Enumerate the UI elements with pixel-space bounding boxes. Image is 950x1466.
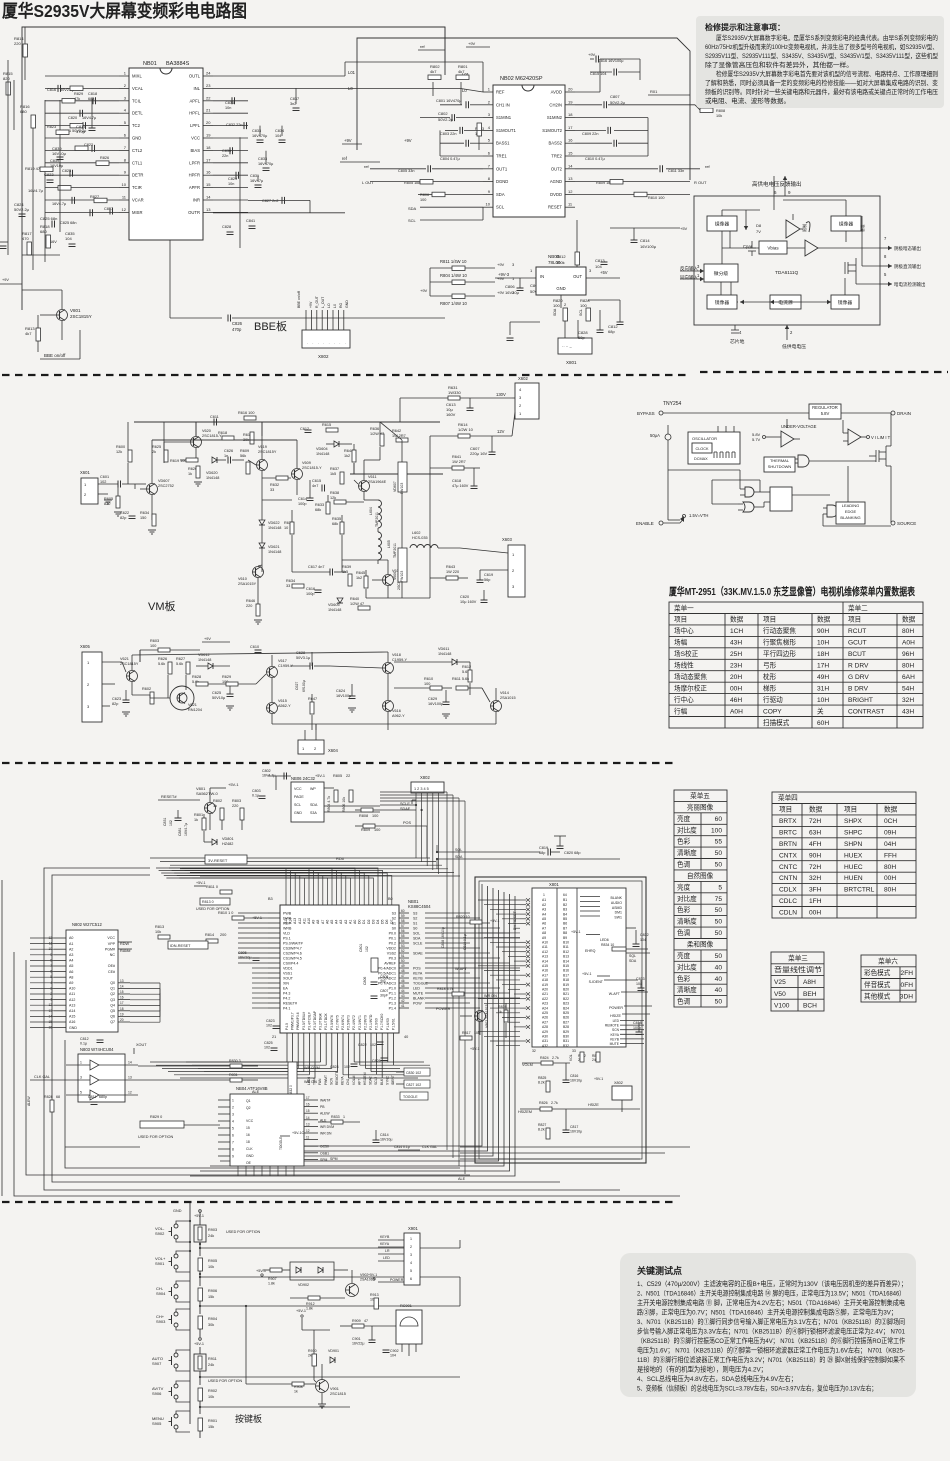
svg-text:A25: A25 [542, 1011, 548, 1015]
svg-text:72H: 72H [809, 864, 821, 871]
svg-text:1k: 1k [294, 1390, 298, 1394]
svg-text:R820 10: R820 10 [456, 915, 470, 919]
svg-text:R906: R906 [208, 1289, 217, 1293]
svg-text:P3.1/TDCK: P3.1/TDCK [324, 1013, 328, 1030]
svg-text:SQL: SQL [629, 954, 636, 958]
svg-text:1 2 3 4 5: 1 2 3 4 5 [414, 787, 429, 791]
svg-text:Q5: Q5 [110, 1009, 115, 1013]
svg-text:4: 4 [232, 1120, 234, 1124]
svg-text:5.8V: 5.8V [821, 411, 830, 416]
svg-text:了解和熟悉，同时必须具备一定的变频彩电的检修技能——如对大屏: 了解和熟悉，同时必须具备一定的变频彩电的检修技能——如对大屏幕集成电路的识别、变 [705, 78, 939, 87]
svg-text:P1.5/S1: P1.5/S1 [391, 1018, 395, 1030]
svg-text:DWB: DWB [283, 916, 292, 920]
svg-text:C809 22n: C809 22n [582, 132, 598, 136]
svg-text:R801: R801 [194, 813, 203, 817]
svg-text:C823: C823 [44, 172, 54, 177]
svg-text:1N4148: 1N4148 [206, 476, 219, 480]
svg-text:R811 1/4W 10: R811 1/4W 10 [440, 259, 467, 264]
svg-text:R813 0: R813 0 [202, 900, 214, 904]
svg-text:SQL: SQL [455, 848, 462, 852]
svg-text:A10: A10 [69, 987, 75, 991]
svg-text:B32: B32 [563, 1044, 569, 1048]
svg-text:96H: 96H [902, 651, 914, 658]
svg-text:NB04 ATF16V8B: NB04 ATF16V8B [236, 1086, 268, 1091]
svg-text:项目: 项目 [779, 806, 792, 814]
svg-text:CH1 IN: CH1 IN [496, 102, 510, 107]
svg-text:58: 58 [401, 919, 405, 923]
svg-text:46: 46 [401, 979, 405, 983]
svg-text:A14: A14 [69, 1009, 75, 1013]
svg-text:菜单五: 菜单五 [690, 791, 710, 800]
svg-text:阴极直流输出: 阴极直流输出 [894, 263, 921, 270]
svg-text:V615: V615 [278, 699, 287, 703]
svg-text:REMOTE: REMOTE [605, 1024, 620, 1028]
svg-text:BA3884S: BA3884S [166, 61, 190, 67]
svg-text:12k: 12k [116, 450, 122, 454]
svg-text:10n: 10n [228, 182, 234, 186]
svg-text:OUT: OUT [573, 274, 582, 279]
svg-text:16V100μ: 16V100μ [640, 244, 657, 249]
svg-text:R626: R626 [158, 657, 167, 661]
svg-text:BRTX: BRTX [779, 818, 797, 825]
svg-text:VD620: VD620 [206, 471, 218, 475]
svg-text:菜单六: 菜单六 [878, 956, 898, 965]
svg-text:APFL: APFL [190, 98, 201, 103]
svg-text:470p: 470p [232, 327, 242, 332]
svg-text:17: 17 [120, 1001, 124, 1005]
svg-text:行驱动: 行驱动 [763, 695, 783, 704]
svg-text:Q3: Q3 [110, 998, 115, 1002]
svg-text:S3: S3 [413, 911, 417, 915]
svg-text:Q0: Q0 [110, 981, 115, 985]
svg-text:C812: C812 [80, 1037, 89, 1041]
svg-text:0.1μ: 0.1μ [252, 794, 259, 798]
svg-text:GND: GND [345, 300, 349, 308]
svg-text:8.2k: 8.2k [538, 1081, 545, 1085]
svg-text:2k: 2k [308, 1354, 312, 1358]
svg-text:150: 150 [140, 516, 146, 520]
svg-text:V801: V801 [70, 308, 81, 313]
svg-text:C807: C807 [380, 989, 388, 993]
svg-text:A3: A3 [542, 908, 546, 912]
svg-text:BRTCTRL: BRTCTRL [844, 887, 875, 894]
svg-text:SCLE: SCLE [413, 941, 423, 945]
svg-text:W-AFT: W-AFT [455, 967, 468, 971]
svg-text:21: 21 [272, 1035, 276, 1039]
svg-text:R807 1/4W 10: R807 1/4W 10 [440, 301, 467, 306]
svg-text:R831: R831 [229, 1073, 238, 1077]
svg-text:L_OUT: L_OUT [321, 296, 325, 308]
svg-text:P0.4/ADC0: P0.4/ADC0 [378, 966, 396, 970]
svg-text:AFT: AFT [357, 1079, 361, 1085]
svg-text:厦华S2935V大屏幕变频彩电电路图: 厦华S2935V大屏幕变频彩电电路图 [2, 1, 247, 21]
svg-text:09H: 09H [884, 829, 896, 836]
svg-text:45: 45 [401, 984, 405, 988]
svg-text:P3.4/TC0L#: P3.4/TC0L# [307, 1012, 311, 1030]
svg-text:HUEN: HUEN [844, 875, 863, 882]
svg-text:BBE on/off: BBE on/off [44, 353, 66, 358]
svg-text:检修厦华S2935V大屏幕数字彩电首先要对该机型的信号流程、: 检修厦华S2935V大屏幕数字彩电首先要对该机型的信号流程、电路特点、工作原理细… [716, 69, 938, 78]
svg-text:CLK GAL: CLK GAL [34, 1075, 50, 1079]
svg-text:A15: A15 [69, 1015, 75, 1019]
svg-text:A22: A22 [542, 997, 548, 1001]
svg-text:1N4148: 1N4148 [316, 452, 329, 456]
svg-text:D4: D4 [376, 919, 380, 924]
svg-text:A3: A3 [339, 920, 343, 924]
svg-text:C837: C837 [290, 97, 299, 101]
svg-text:C836: C836 [225, 101, 234, 105]
svg-text:SDA: SDA [413, 936, 421, 940]
svg-text:1N4148: 1N4148 [198, 658, 211, 662]
svg-text:B30: B30 [563, 1035, 569, 1039]
svg-text:16V4.7μ: 16V4.7μ [82, 116, 96, 120]
svg-text:R639: R639 [342, 565, 351, 569]
svg-text:SCN: SCN [329, 1077, 333, 1085]
svg-text:INL: INL [193, 86, 200, 91]
svg-text:HUEC: HUEC [844, 864, 863, 871]
svg-text:S1: S1 [413, 921, 417, 925]
svg-text:DGND: DGND [496, 179, 508, 184]
svg-text:C826: C826 [372, 1059, 381, 1063]
svg-text:限制: 限制 [801, 224, 807, 232]
svg-text:X802: X802 [318, 354, 329, 359]
svg-text:A16: A16 [69, 1020, 75, 1024]
svg-text:SHPN: SHPN [844, 841, 863, 848]
svg-text:14: 14 [568, 163, 573, 168]
svg-text:基准: 基准 [860, 224, 865, 232]
svg-text:15k: 15k [208, 1425, 214, 1429]
svg-text:14: 14 [120, 984, 124, 988]
svg-text:10: 10 [486, 202, 491, 207]
svg-text:是接地的（有的机型为接地），则电压为4.2V；: 是接地的（有的机型为接地），则电压为4.2V； [637, 1365, 767, 1374]
svg-text:R645: R645 [356, 571, 365, 575]
svg-text:A6: A6 [325, 920, 329, 924]
svg-text:13: 13 [568, 176, 573, 181]
svg-text:19: 19 [120, 1012, 124, 1016]
svg-text:+5V-1: +5V-1 [228, 782, 239, 787]
svg-text:D6: D6 [385, 919, 389, 924]
svg-text:RESET#: RESET# [283, 1001, 297, 1005]
svg-text:PAGE: PAGE [294, 795, 304, 799]
svg-text:56p: 56p [484, 578, 490, 582]
svg-text:CNTC: CNTC [779, 864, 798, 871]
svg-text:CE#: CE# [108, 970, 115, 974]
svg-text:+9V: +9V [497, 262, 505, 267]
svg-text:P1.6/S0: P1.6/S0 [386, 1018, 390, 1030]
svg-text:RDW: RDW [120, 942, 129, 946]
svg-text:Q2: Q2 [110, 992, 115, 996]
svg-text:+5V: +5V [680, 226, 688, 231]
svg-text:HSIZEM: HSIZEM [363, 1072, 367, 1085]
svg-text:A4: A4 [542, 912, 546, 916]
svg-text:BBE on/off: BBE on/off [297, 291, 301, 308]
svg-text:TCIR: TCIR [132, 185, 142, 190]
svg-text:TRE1: TRE1 [496, 154, 507, 159]
svg-text:UNDER-VOLTAGE: UNDER-VOLTAGE [781, 424, 817, 429]
svg-text:R632: R632 [270, 483, 279, 487]
svg-text:B3: B3 [563, 908, 567, 912]
svg-text:X802: X802 [420, 775, 430, 780]
svg-text:A1: A1 [69, 942, 73, 946]
svg-text:S3: S3 [392, 911, 396, 915]
svg-text:B24: B24 [563, 1006, 569, 1010]
svg-text:SCL: SCL [579, 309, 583, 316]
svg-text:R811 0: R811 0 [206, 885, 218, 889]
svg-text:R611 5.6k: R611 5.6k [452, 677, 469, 681]
svg-text:72H: 72H [809, 818, 821, 825]
svg-text:+5V-1: +5V-1 [571, 930, 581, 934]
svg-text:亮丽图像: 亮丽图像 [687, 802, 714, 811]
svg-text:11B）的⑧脚行相位滤波器正常工作电压为3.2V；N701（: 11B）的⑧脚行相位滤波器正常工作电压为3.2V；N701（KB2511B）的 … [637, 1355, 905, 1364]
svg-text:SOURCE: SOURCE [897, 521, 916, 526]
svg-text:470: 470 [22, 236, 29, 241]
svg-text:TDA6111Q: TDA6111Q [775, 270, 799, 276]
svg-text:C620: C620 [460, 595, 469, 599]
svg-text:C802: C802 [262, 769, 271, 773]
svg-text:2FH: 2FH [901, 970, 914, 977]
svg-text:A10: A10 [307, 918, 311, 924]
svg-text:A18: A18 [542, 978, 548, 982]
svg-text:R_OUT: R_OUT [315, 295, 319, 308]
svg-text:BASS2: BASS2 [548, 141, 562, 146]
svg-text:2、N501（TDA16846）主开关电源控制集成电路 ⑭: 2、N501（TDA16846）主开关电源控制集成电路 ⑭ 脚的电压，正常电压为… [637, 1289, 905, 1298]
svg-text:+5V-1: +5V-1 [594, 1077, 603, 1081]
svg-text:C610: C610 [250, 645, 259, 649]
svg-text:50: 50 [715, 862, 723, 869]
svg-text:HUEX: HUEX [844, 852, 863, 859]
svg-text:ALEW: ALEW [27, 1096, 31, 1106]
svg-text:C616: C616 [306, 587, 315, 591]
svg-text:1.8k: 1.8k [306, 1307, 313, 1311]
svg-text:3: 3 [410, 1253, 412, 1257]
svg-text:A7: A7 [321, 920, 325, 924]
svg-text:TC2: TC2 [132, 123, 141, 128]
svg-text:CTL1: CTL1 [132, 160, 143, 165]
svg-text:00H: 00H [730, 685, 742, 692]
svg-text:NB01: NB01 [143, 61, 157, 67]
svg-text:A19: A19 [542, 983, 548, 987]
svg-text:C825 68n: C825 68n [60, 221, 76, 225]
svg-text:X801: X801 [566, 360, 577, 365]
svg-text:弓形: 弓形 [763, 662, 777, 670]
svg-text:PB: PB [320, 1105, 325, 1109]
svg-text:BLK: BLK [380, 1078, 384, 1085]
svg-text:A2: A2 [344, 920, 348, 924]
svg-text:A6: A6 [69, 970, 73, 974]
svg-text:低供电电压: 低供电电压 [782, 343, 806, 350]
svg-text:R629: R629 [222, 675, 231, 679]
svg-text:A20: A20 [542, 988, 548, 992]
svg-text:场S校正: 场S校正 [674, 649, 699, 658]
svg-text:2SC1815-Y: 2SC1815-Y [302, 466, 322, 470]
svg-text:220: 220 [232, 804, 238, 808]
svg-text:2.7k: 2.7k [551, 1101, 558, 1105]
svg-text:彩色模式: 彩色模式 [864, 968, 891, 977]
svg-text:102: 102 [266, 1024, 272, 1028]
svg-text:TOGGLE: TOGGLE [403, 1095, 418, 1099]
svg-text:P0.1: P0.1 [389, 936, 396, 940]
svg-text:L OUT: L OUT [362, 180, 374, 185]
svg-text:7: 7 [232, 1141, 234, 1145]
svg-text:厦华S2935V大屏幕数字彩电，是厦华S系列变频彩电的经典代: 厦华S2935V大屏幕数字彩电，是厦华S系列变频彩电的经典代表。由早S系列变频彩… [716, 33, 938, 42]
svg-text:BEH: BEH [803, 991, 817, 998]
svg-text:R829: R829 [74, 92, 83, 96]
svg-text:SDA2: SDA2 [369, 1076, 373, 1085]
svg-text:R618: R618 [218, 431, 227, 435]
svg-text:13: 13 [206, 207, 211, 212]
svg-text:C816: C816 [47, 88, 56, 92]
svg-text:CNTN: CNTN [779, 875, 798, 882]
svg-text:102: 102 [100, 480, 106, 484]
svg-text:7V: 7V [756, 229, 761, 234]
svg-text:SCL: SCL [408, 218, 417, 223]
svg-text:104: 104 [275, 134, 281, 138]
svg-text:L01: L01 [348, 70, 356, 75]
svg-text:自然图像: 自然图像 [687, 871, 714, 880]
svg-text:APFR: APFR [189, 185, 200, 190]
svg-text:80H: 80H [884, 864, 896, 871]
svg-text:A13: A13 [542, 955, 548, 959]
svg-text:55: 55 [715, 839, 723, 846]
svg-text:P3.3/TDGAP: P3.3/TDGAP [313, 1010, 317, 1030]
svg-text:R903: R903 [208, 1228, 217, 1232]
svg-text:BBE板: BBE板 [254, 319, 287, 333]
svg-text:VD612: VD612 [198, 653, 210, 657]
svg-text:2SA1015Y: 2SA1015Y [238, 582, 257, 586]
svg-text:R628: R628 [192, 675, 201, 679]
svg-text:16: 16 [120, 996, 124, 1000]
svg-text:+5V-1: +5V-1 [196, 881, 206, 885]
svg-text:2: 2 [410, 1245, 412, 1249]
svg-text:1: 1 [80, 1061, 82, 1065]
svg-text:清晰度: 清晰度 [677, 848, 697, 857]
svg-text:VM板: VM板 [148, 599, 176, 613]
svg-text:C818: C818 [88, 92, 97, 96]
svg-text:KEYA: KEYA [341, 1076, 345, 1085]
svg-text:4k7: 4k7 [430, 69, 437, 74]
svg-text:数据: 数据 [884, 805, 898, 814]
svg-text:B1: B1 [563, 898, 567, 902]
svg-text:CTL2: CTL2 [132, 148, 143, 153]
svg-text:Q7: Q7 [110, 1020, 115, 1024]
svg-text:V620: V620 [202, 429, 211, 433]
svg-text:POWER: POWER [609, 1006, 623, 1010]
svg-text:A8: A8 [69, 975, 73, 979]
svg-text:160V: 160V [446, 412, 456, 417]
svg-text:C831: C831 [163, 818, 167, 826]
svg-text:220μ 16V: 220μ 16V [470, 451, 488, 456]
svg-text:枕形: 枕形 [763, 672, 777, 681]
svg-text:BLANK: BLANK [611, 896, 623, 900]
svg-text:对比度: 对比度 [677, 962, 697, 971]
svg-text:DRAIN: DRAIN [897, 411, 911, 416]
svg-text:菜单一: 菜单一 [674, 603, 694, 612]
svg-text:A8: A8 [542, 931, 546, 935]
svg-text:B DRV: B DRV [848, 685, 869, 692]
svg-text:+9V: +9V [309, 301, 313, 308]
svg-text:高供电电压反馈输出: 高供电电压反馈输出 [752, 180, 802, 188]
svg-text:21: 21 [206, 108, 211, 113]
svg-text:OUT1: OUT1 [496, 166, 508, 171]
svg-text:4FH: 4FH [809, 841, 822, 848]
svg-text:5、变频板（信频板）的总线电压为SCL=3.78V左右，SD: 5、变频板（信频板）的总线电压为SCL=3.78V左右，SDA=3.97V左右，… [637, 1384, 877, 1393]
svg-text:电流源: 电流源 [778, 299, 793, 306]
svg-text:扫描模式: 扫描模式 [763, 718, 790, 727]
svg-text:FW103: FW103 [400, 571, 404, 582]
svg-text:USED FOR OPTION: USED FOR OPTION [226, 1230, 261, 1234]
svg-text:R808: R808 [716, 109, 725, 113]
svg-text:R913: R913 [370, 1293, 379, 1297]
svg-text:EDGE: EDGE [845, 509, 857, 514]
svg-text:AVREF: AVREF [384, 961, 397, 965]
svg-text:FFH: FFH [884, 852, 897, 859]
svg-text:COPY: COPY [763, 708, 782, 715]
svg-text:EHRQ: EHRQ [585, 949, 596, 953]
svg-text:菜单四: 菜单四 [778, 793, 798, 802]
svg-text:C832 22n: C832 22n [226, 123, 242, 127]
svg-text:C617 4n7: C617 4n7 [308, 565, 324, 569]
svg-text:VD902: VD902 [298, 1283, 309, 1287]
svg-text:19: 19 [206, 133, 211, 138]
svg-text:L0: L0 [333, 304, 337, 308]
svg-text:C839: C839 [50, 159, 59, 163]
svg-text:ALE: ALE [458, 1177, 466, 1181]
svg-text:A5: A5 [69, 964, 73, 968]
svg-text:VDD1: VDD1 [283, 966, 293, 970]
svg-text:C801 16V470μ: C801 16V470μ [436, 99, 461, 103]
svg-text:C806: C806 [363, 977, 367, 985]
svg-text:关: 关 [817, 706, 824, 715]
svg-text:RAM#: RAM# [120, 949, 131, 953]
svg-text:100: 100 [711, 827, 722, 834]
svg-text:A13: A13 [69, 1003, 75, 1007]
svg-text:B28: B28 [563, 1025, 569, 1029]
svg-text:.: . [323, 341, 324, 345]
svg-text:SYNC: SYNC [385, 1075, 389, 1085]
svg-text:RN1204: RN1204 [188, 708, 202, 712]
svg-text:32H: 32H [902, 697, 914, 704]
svg-text:亮度: 亮度 [677, 882, 691, 891]
svg-text:A31: A31 [542, 1039, 548, 1043]
svg-text:B18: B18 [563, 978, 569, 982]
svg-text:102: 102 [169, 820, 173, 826]
svg-text:CLOCK: CLOCK [695, 447, 709, 451]
svg-text:10k: 10k [155, 930, 161, 934]
svg-text:除了显像管高压包和软件有差异外，其他都一样。: 除了显像管高压包和软件有差异外，其他都一样。 [705, 60, 853, 69]
svg-text:46H: 46H [730, 697, 742, 704]
svg-text:5: 5 [410, 1269, 412, 1273]
svg-text:C805 33n: C805 33n [398, 169, 414, 173]
svg-text:R602: R602 [142, 687, 151, 691]
svg-text:A29: A29 [542, 1030, 548, 1034]
svg-text:S1MOUT2: S1MOUT2 [542, 128, 562, 133]
svg-text:OE#: OE# [108, 964, 115, 968]
svg-text:POW: POW [413, 1001, 422, 1005]
svg-text:C814: C814 [380, 1133, 389, 1137]
svg-text:R802: R802 [213, 799, 222, 803]
svg-text:PWB: PWB [283, 911, 292, 915]
svg-text:3n2: 3n2 [290, 102, 296, 106]
svg-text:G DRV: G DRV [848, 674, 869, 681]
svg-text:13: 13 [306, 1122, 310, 1126]
svg-text:+9V: +9V [497, 276, 505, 281]
svg-text:.: . [334, 341, 335, 345]
svg-text:R616 100: R616 100 [238, 411, 254, 415]
svg-text:VD604: VD604 [316, 447, 328, 451]
svg-text:NC: NC [110, 953, 116, 957]
svg-text:VCC: VCC [107, 936, 115, 940]
svg-text:SA562TW-0: SA562TW-0 [196, 791, 218, 796]
